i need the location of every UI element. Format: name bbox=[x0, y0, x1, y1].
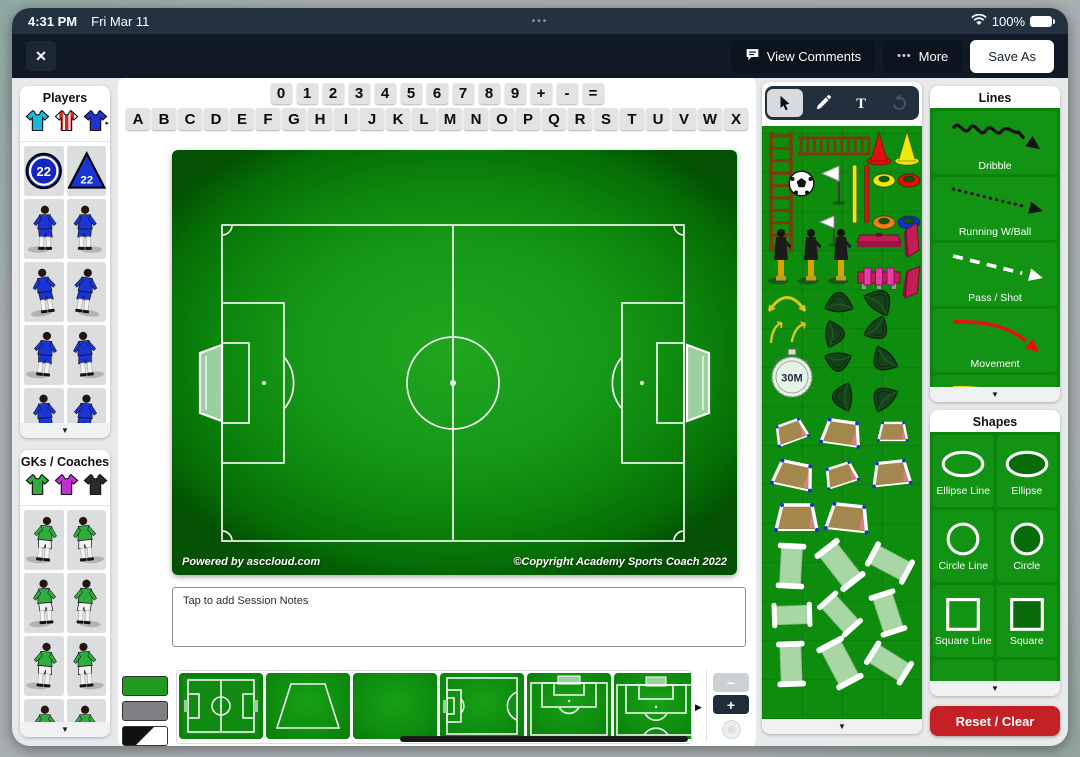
player-figure[interactable] bbox=[67, 199, 107, 259]
letter-key-D[interactable]: D bbox=[204, 108, 228, 130]
shape-preview bbox=[937, 446, 989, 482]
equipment-mann[interactable] bbox=[798, 228, 824, 286]
lines-expand-chevron[interactable]: ▼ bbox=[930, 387, 1060, 402]
svg-text:T: T bbox=[856, 96, 866, 112]
shape-square-line[interactable]: Square Line bbox=[933, 585, 994, 657]
shape-preview bbox=[1001, 521, 1053, 557]
shape-rect-filled[interactable] bbox=[997, 660, 1058, 681]
letter-key-C[interactable]: C bbox=[178, 108, 202, 130]
equipment-net[interactable] bbox=[822, 318, 854, 350]
letter-key-A[interactable]: A bbox=[126, 108, 150, 130]
shape-circle-line[interactable]: Circle Line bbox=[933, 510, 994, 582]
shapes-panel-title: Shapes bbox=[930, 410, 1060, 431]
close-button[interactable]: ✕ bbox=[26, 41, 56, 71]
gk-expand-chevron[interactable]: ▼ bbox=[20, 722, 110, 737]
letter-key-O[interactable]: O bbox=[490, 108, 514, 130]
text-icon: T bbox=[852, 94, 870, 112]
swatch-black-white[interactable] bbox=[122, 726, 168, 746]
gk-figure[interactable] bbox=[67, 573, 107, 633]
gk-panel-title: GKs / Coaches bbox=[20, 450, 110, 471]
more-icon: ••• bbox=[897, 50, 912, 62]
template-strip bbox=[176, 670, 692, 744]
board-panel: 0123456789+-= ABCDEFGHIJKLMNOPQRSTUVWX bbox=[118, 78, 756, 746]
line-style-preview bbox=[941, 180, 1049, 225]
number-key-1[interactable]: 1 bbox=[297, 83, 318, 104]
equipment-bench[interactable] bbox=[856, 232, 902, 250]
letter-key-B[interactable]: B bbox=[152, 108, 176, 130]
pencil-icon bbox=[814, 94, 832, 112]
wifi-icon bbox=[971, 14, 987, 29]
copyright-text: ©Copyright Academy Sports Coach 2022 bbox=[513, 556, 727, 568]
shapes-expand-chevron[interactable]: ▼ bbox=[930, 681, 1060, 696]
equipment-grid: 30M bbox=[762, 126, 922, 719]
letter-key-P[interactable]: P bbox=[516, 108, 540, 130]
swatch-gray[interactable] bbox=[122, 701, 168, 721]
equipment-goal[interactable] bbox=[866, 418, 916, 446]
line-style-dribble[interactable]: Dribble bbox=[933, 111, 1057, 174]
player-badge-triangle[interactable]: 22 bbox=[67, 146, 107, 196]
equipment-net[interactable] bbox=[824, 380, 854, 414]
more-button[interactable]: ••• More bbox=[883, 40, 962, 73]
equipment-net[interactable] bbox=[822, 350, 854, 380]
svg-text:30M: 30M bbox=[781, 373, 802, 385]
shape-label: Square Line bbox=[935, 635, 992, 647]
equipment-flag[interactable] bbox=[818, 162, 848, 206]
equipment-cone[interactable] bbox=[894, 130, 920, 166]
template-thumb-penalty-top[interactable] bbox=[527, 673, 611, 739]
shape-circle-filled[interactable]: Circle bbox=[997, 510, 1058, 582]
letter-key-T[interactable]: T bbox=[620, 108, 644, 130]
color-swatches bbox=[122, 676, 168, 746]
number-key-9[interactable]: 9 bbox=[505, 83, 526, 104]
template-thumb-blank[interactable] bbox=[353, 673, 437, 739]
session-notes-placeholder: Tap to add Session Notes bbox=[183, 595, 308, 607]
player-figure[interactable] bbox=[67, 262, 107, 322]
equipment-mann[interactable] bbox=[768, 228, 794, 286]
player-jersey-2[interactable] bbox=[24, 108, 51, 138]
equipment-net[interactable] bbox=[858, 372, 903, 417]
shapes-panel: Shapes Ellipse Line Ellipse Circle Line … bbox=[930, 410, 1060, 696]
number-key-=[interactable]: = bbox=[583, 83, 604, 104]
tool-undo-button[interactable] bbox=[881, 89, 917, 117]
letter-key-H[interactable]: H bbox=[308, 108, 332, 130]
template-thumb-half-pitch[interactable] bbox=[440, 673, 524, 739]
zoom-in-button[interactable]: + bbox=[713, 695, 749, 714]
equipment-ladderH[interactable] bbox=[796, 134, 872, 158]
line-style-label: Dribble bbox=[978, 160, 1011, 172]
letter-key-E[interactable]: E bbox=[230, 108, 254, 130]
view-comments-button[interactable]: View Comments bbox=[731, 40, 875, 73]
powered-by-text: Powered by asccloud.com bbox=[182, 556, 320, 568]
shape-ellipse-filled[interactable]: Ellipse bbox=[997, 435, 1058, 507]
players-jersey-row: ▸ bbox=[20, 107, 110, 142]
template-thumb-full-pitch[interactable] bbox=[179, 673, 263, 739]
number-key-6[interactable]: 6 bbox=[427, 83, 448, 104]
equipment-panel: T 30M ▼ bbox=[762, 82, 922, 734]
pan-target-icon[interactable]: ◎ bbox=[722, 720, 741, 739]
template-scroll-arrow[interactable]: ▶ bbox=[695, 702, 702, 713]
letter-key-N[interactable]: N bbox=[464, 108, 488, 130]
gk-jersey-0[interactable] bbox=[24, 472, 51, 502]
equipment-ball[interactable] bbox=[788, 170, 815, 197]
tool-text-button[interactable]: T bbox=[843, 89, 879, 117]
equipment-pole[interactable] bbox=[862, 164, 871, 224]
equipment-cone[interactable] bbox=[866, 130, 892, 166]
app-window: 4:31 PM Fri Mar 11 ••• 100% ✕ View Comme… bbox=[12, 8, 1068, 746]
equipment-goal[interactable] bbox=[818, 495, 872, 540]
lines-panel-title: Lines bbox=[930, 86, 1060, 107]
shape-rect-line[interactable] bbox=[933, 660, 994, 681]
gk-jersey-2[interactable] bbox=[82, 472, 109, 502]
line-style-preview bbox=[941, 246, 1049, 291]
chevron-down-icon: ▼ bbox=[61, 426, 69, 435]
letter-key-W[interactable]: W bbox=[698, 108, 722, 130]
player-figure[interactable] bbox=[24, 325, 64, 385]
shape-label: Circle Line bbox=[938, 560, 988, 572]
line-style-running-w-ball[interactable]: Running W/Ball bbox=[933, 177, 1057, 240]
shape-preview bbox=[1001, 596, 1053, 632]
equipment-goal[interactable] bbox=[815, 451, 864, 501]
swatch-green[interactable] bbox=[122, 676, 168, 696]
jersey-scroll-arrow[interactable]: ▸ bbox=[105, 119, 109, 127]
gk-figure[interactable] bbox=[24, 510, 64, 570]
gk-figure[interactable] bbox=[24, 636, 64, 696]
line-style-label: Running W/Ball bbox=[959, 226, 1031, 238]
shape-preview bbox=[937, 521, 989, 557]
letter-key-S[interactable]: S bbox=[594, 108, 618, 130]
chevron-down-icon: ▼ bbox=[838, 722, 846, 731]
number-key-4[interactable]: 4 bbox=[375, 83, 396, 104]
zoom-controls: − + ◎ bbox=[706, 670, 756, 742]
chevron-down-icon: ▼ bbox=[991, 390, 999, 399]
equipment-disc[interactable] bbox=[897, 172, 921, 188]
equipment-net[interactable] bbox=[820, 284, 858, 314]
status-date: Fri Mar 11 bbox=[91, 14, 149, 29]
equipment-flat[interactable] bbox=[856, 630, 922, 697]
letter-key-U[interactable]: U bbox=[646, 108, 670, 130]
letter-key-J[interactable]: J bbox=[360, 108, 384, 130]
equipment-goal[interactable] bbox=[765, 409, 814, 458]
letter-key-G[interactable]: G bbox=[282, 108, 306, 130]
player-jersey-1[interactable] bbox=[53, 108, 80, 138]
letter-key-row: ABCDEFGHIJKLMNOPQRSTUVWX bbox=[118, 108, 756, 130]
player-figure[interactable] bbox=[24, 262, 64, 322]
letter-key-I[interactable]: I bbox=[334, 108, 358, 130]
more-label: More bbox=[919, 49, 949, 64]
zoom-out-button[interactable]: − bbox=[713, 673, 749, 692]
chevron-down-icon: ▼ bbox=[991, 684, 999, 693]
comment-bubble-icon bbox=[745, 47, 760, 65]
tool-cursor-button[interactable] bbox=[767, 89, 803, 117]
shape-preview bbox=[937, 596, 989, 632]
equipment-watch[interactable]: 30M bbox=[768, 348, 816, 400]
save-as-button[interactable]: Save As bbox=[970, 40, 1054, 73]
multitask-dots: ••• bbox=[532, 16, 549, 27]
gk-grid bbox=[20, 506, 110, 737]
number-key-row: 0123456789+-= bbox=[118, 83, 756, 104]
status-time: 4:31 PM bbox=[28, 14, 77, 29]
letter-key-Q[interactable]: Q bbox=[542, 108, 566, 130]
number-key-3[interactable]: 3 bbox=[349, 83, 370, 104]
gk-figure[interactable] bbox=[67, 636, 107, 696]
shape-ellipse-line[interactable]: Ellipse Line bbox=[933, 435, 994, 507]
letter-key-R[interactable]: R bbox=[568, 108, 592, 130]
equipment-goal[interactable] bbox=[763, 451, 820, 499]
gk-coaches-panel: GKs / Coaches bbox=[20, 450, 110, 737]
pitch-markings bbox=[172, 150, 737, 575]
goal-left bbox=[200, 345, 222, 421]
letter-key-M[interactable]: M bbox=[438, 108, 462, 130]
shape-label: Ellipse bbox=[1011, 485, 1042, 497]
number-key-5[interactable]: 5 bbox=[401, 83, 422, 104]
equipment-goal[interactable] bbox=[860, 453, 917, 494]
letter-key-X[interactable]: X bbox=[724, 108, 748, 130]
shape-square-filled[interactable]: Square bbox=[997, 585, 1058, 657]
status-bar: 4:31 PM Fri Mar 11 ••• 100% bbox=[12, 8, 1068, 34]
number-key-0[interactable]: 0 bbox=[271, 83, 292, 104]
line-style-preview bbox=[941, 114, 1049, 159]
shape-label: Circle bbox=[1013, 560, 1040, 572]
equipment-flat[interactable] bbox=[858, 531, 921, 595]
equipment-flat[interactable] bbox=[771, 541, 811, 591]
letter-key-V[interactable]: V bbox=[672, 108, 696, 130]
number-key-8[interactable]: 8 bbox=[479, 83, 500, 104]
number-key-7[interactable]: 7 bbox=[453, 83, 474, 104]
svg-text:22: 22 bbox=[80, 174, 93, 186]
equipment-board[interactable] bbox=[904, 222, 920, 258]
template-scrollbar[interactable] bbox=[400, 736, 688, 742]
line-style-label: Movement bbox=[970, 358, 1019, 370]
equipment-expand-chevron[interactable]: ▼ bbox=[762, 719, 922, 734]
line-style-label: Pass / Shot bbox=[968, 292, 1022, 304]
undo-icon bbox=[890, 94, 908, 112]
number-key-+[interactable]: + bbox=[531, 83, 552, 104]
reset-clear-button[interactable]: Reset / Clear bbox=[930, 706, 1060, 736]
player-badge-circle[interactable]: 22 bbox=[24, 146, 64, 196]
equipment-flat[interactable] bbox=[771, 639, 811, 688]
letter-key-L[interactable]: L bbox=[412, 108, 436, 130]
shape-preview bbox=[1001, 446, 1053, 482]
number-key-2[interactable]: 2 bbox=[323, 83, 344, 104]
player-figure[interactable] bbox=[67, 325, 107, 385]
equipment-arcS[interactable] bbox=[768, 320, 786, 346]
line-style-preview bbox=[941, 378, 1049, 387]
draw-tools: T bbox=[765, 86, 919, 120]
equipment-mann[interactable] bbox=[828, 228, 854, 286]
letter-key-F[interactable]: F bbox=[256, 108, 280, 130]
app-toolbar: ✕ View Comments ••• More Save As bbox=[12, 34, 1068, 78]
players-panel-title: Players bbox=[20, 86, 110, 107]
battery-icon bbox=[1030, 16, 1052, 27]
tool-pencil-button[interactable] bbox=[805, 89, 841, 117]
pitch-canvas[interactable]: Powered by asccloud.com ©Copyright Acade… bbox=[172, 150, 737, 575]
gk-jersey-1[interactable] bbox=[53, 472, 80, 502]
players-expand-chevron[interactable]: ▼ bbox=[20, 423, 110, 438]
view-comments-label: View Comments bbox=[767, 49, 861, 64]
equipment-pole[interactable] bbox=[850, 164, 859, 224]
equipment-disc[interactable] bbox=[872, 214, 896, 230]
shape-label: Ellipse Line bbox=[936, 485, 990, 497]
players-grid: 2222 bbox=[20, 142, 110, 438]
battery-percent: 100% bbox=[992, 14, 1025, 29]
lines-panel: Lines Dribble Running W/Ball Pass / Shot… bbox=[930, 86, 1060, 402]
equipment-arc[interactable] bbox=[766, 292, 808, 314]
equipment-goal[interactable] bbox=[768, 498, 820, 538]
gk-figure[interactable] bbox=[24, 573, 64, 633]
line-style-movement[interactable]: Movement bbox=[933, 309, 1057, 372]
gk-figure[interactable] bbox=[67, 510, 107, 570]
cursor-icon bbox=[776, 94, 794, 112]
number-key--[interactable]: - bbox=[557, 83, 578, 104]
session-notes-input[interactable]: Tap to add Session Notes bbox=[172, 587, 746, 647]
svg-text:22: 22 bbox=[37, 164, 51, 179]
goal-right bbox=[687, 345, 709, 421]
equipment-flat[interactable] bbox=[770, 590, 814, 639]
equipment-disc[interactable] bbox=[872, 172, 896, 188]
line-style-preview bbox=[941, 312, 1049, 357]
equipment-goal[interactable] bbox=[814, 411, 865, 455]
equipment-arcS[interactable] bbox=[788, 319, 809, 347]
template-thumb-trapezoid[interactable] bbox=[266, 673, 350, 739]
template-thumb-penalty-wide[interactable] bbox=[614, 673, 692, 739]
letter-key-K[interactable]: K bbox=[386, 108, 410, 130]
players-panel: Players ▸ 2222 bbox=[20, 86, 110, 438]
shape-label: Square bbox=[1010, 635, 1044, 647]
line-style-pass-shot[interactable]: Pass / Shot bbox=[933, 243, 1057, 306]
line-style-extra[interactable] bbox=[933, 375, 1057, 387]
chevron-down-icon: ▼ bbox=[61, 725, 69, 734]
gk-jersey-row bbox=[20, 471, 110, 506]
player-figure[interactable] bbox=[24, 199, 64, 259]
